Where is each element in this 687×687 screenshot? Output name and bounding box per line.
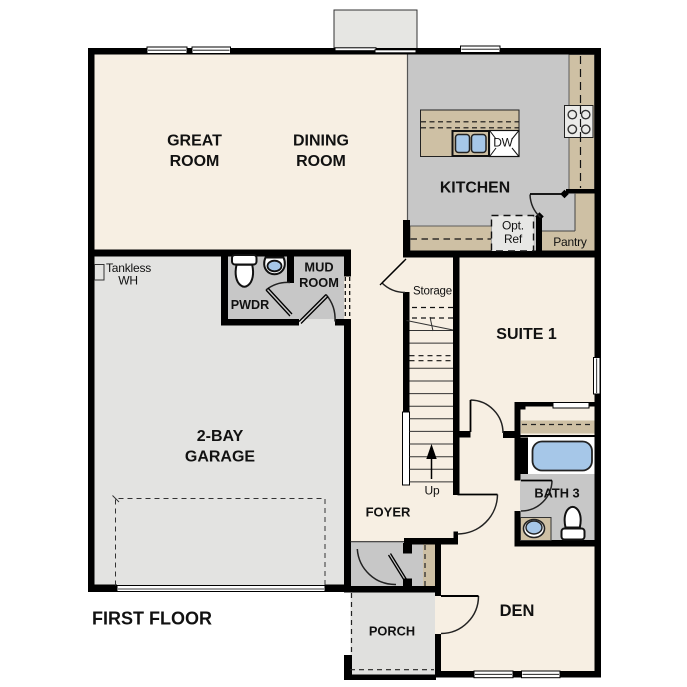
svg-text:2-BAY: 2-BAY	[197, 428, 244, 445]
svg-text:FIRST FLOOR: FIRST FLOOR	[92, 609, 212, 629]
svg-text:Storage: Storage	[413, 286, 452, 298]
svg-text:ROOM: ROOM	[299, 275, 339, 290]
svg-text:PWDR: PWDR	[231, 298, 269, 312]
svg-text:Opt.: Opt.	[502, 219, 524, 233]
svg-text:GREAT: GREAT	[167, 133, 222, 150]
svg-text:DEN: DEN	[500, 602, 535, 620]
svg-text:DW: DW	[493, 136, 513, 150]
svg-text:FOYER: FOYER	[366, 505, 411, 520]
svg-text:KITCHEN: KITCHEN	[440, 179, 510, 196]
svg-text:Up: Up	[425, 484, 440, 498]
svg-text:Pantry: Pantry	[553, 235, 587, 249]
svg-text:WH: WH	[118, 273, 138, 287]
svg-text:BATH 3: BATH 3	[534, 486, 579, 501]
svg-text:GARAGE: GARAGE	[185, 448, 256, 465]
svg-text:SUITE 1: SUITE 1	[496, 326, 557, 343]
svg-text:ROOM: ROOM	[170, 153, 220, 170]
svg-text:DINING: DINING	[293, 133, 349, 150]
svg-text:ROOM: ROOM	[296, 153, 346, 170]
svg-text:Ref: Ref	[504, 232, 523, 246]
svg-text:MUD: MUD	[304, 260, 333, 275]
svg-text:PORCH: PORCH	[369, 624, 415, 639]
